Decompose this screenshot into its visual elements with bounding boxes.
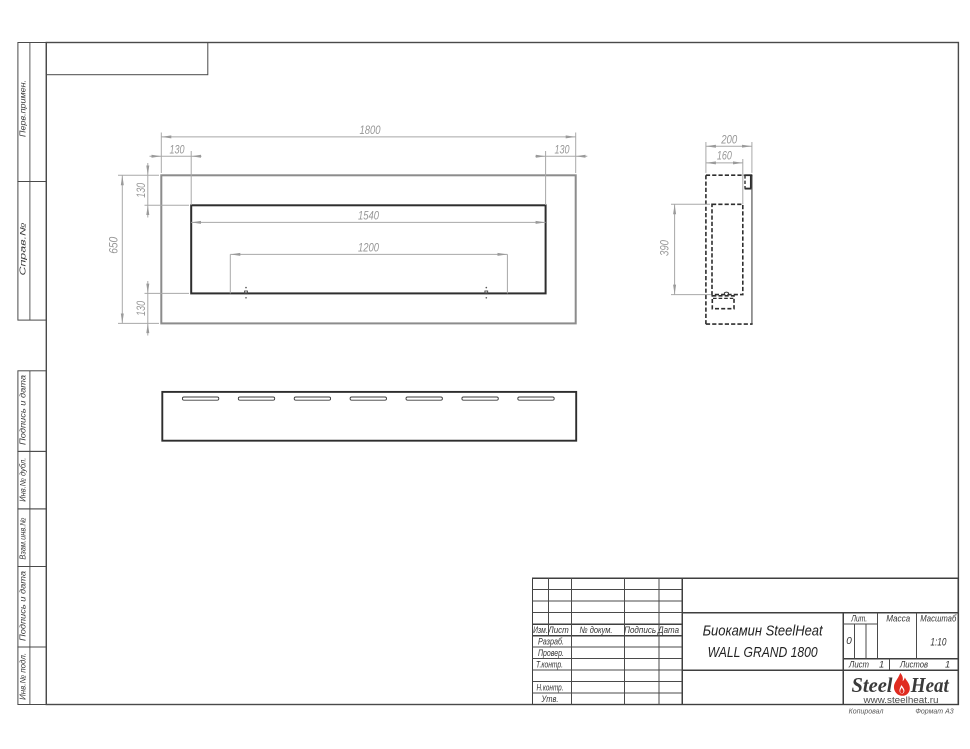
svg-text:Подпись и дата: Подпись и дата xyxy=(19,570,28,641)
svg-text:1: 1 xyxy=(945,660,950,670)
svg-text:Листов: Листов xyxy=(899,660,928,670)
svg-text:Взам.инв.№: Взам.инв.№ xyxy=(19,517,28,559)
svg-text:www.steelheat.ru: www.steelheat.ru xyxy=(862,695,938,705)
svg-text:200: 200 xyxy=(720,132,737,146)
svg-text:Heat: Heat xyxy=(910,673,950,697)
svg-text:Н.контр.: Н.контр. xyxy=(537,682,564,692)
svg-text:Утв.: Утв. xyxy=(541,694,559,704)
svg-text:Подпись и дата: Подпись и дата xyxy=(19,374,28,445)
svg-text:Дата: Дата xyxy=(657,625,679,635)
svg-text:Провер.: Провер. xyxy=(538,648,564,658)
svg-text:130: 130 xyxy=(134,183,148,198)
svg-text:1: 1 xyxy=(879,660,884,670)
svg-text:1540: 1540 xyxy=(358,209,379,223)
svg-text:Биокамин SteelHeat: Биокамин SteelHeat xyxy=(703,623,824,640)
svg-text:Лист: Лист xyxy=(848,660,869,670)
svg-text:1200: 1200 xyxy=(358,241,379,255)
svg-text:130: 130 xyxy=(170,143,185,157)
svg-text:1800: 1800 xyxy=(360,123,381,137)
svg-text:650: 650 xyxy=(107,237,121,254)
svg-text:Т.контр.: Т.контр. xyxy=(536,660,563,670)
svg-text:160: 160 xyxy=(717,149,732,163)
svg-text:Справ.№: Справ.№ xyxy=(19,222,28,276)
svg-text:Инв.№ подл.: Инв.№ подл. xyxy=(19,653,28,700)
svg-text:Разраб.: Разраб. xyxy=(538,637,564,647)
svg-text:Инв.№ дубл.: Инв.№ дубл. xyxy=(19,458,28,502)
svg-text:WALL GRAND 1800: WALL GRAND 1800 xyxy=(708,644,819,661)
svg-text:Изм.: Изм. xyxy=(533,625,548,635)
svg-text:Копировал: Копировал xyxy=(849,709,884,716)
svg-text:0: 0 xyxy=(846,636,852,647)
svg-text:390: 390 xyxy=(657,240,671,256)
svg-text:1:10: 1:10 xyxy=(930,637,947,649)
svg-text:Лит.: Лит. xyxy=(850,614,867,624)
svg-text:Steel: Steel xyxy=(852,673,893,697)
svg-text:Подпись: Подпись xyxy=(624,625,656,635)
svg-text:Лист: Лист xyxy=(547,625,569,635)
svg-text:Перв.примен.: Перв.примен. xyxy=(19,80,28,137)
svg-text:№ докум.: № докум. xyxy=(580,625,613,635)
svg-text:130: 130 xyxy=(555,143,570,157)
svg-text:Масштаб: Масштаб xyxy=(920,614,957,624)
svg-text:Масса: Масса xyxy=(886,614,910,624)
svg-text:130: 130 xyxy=(134,301,148,316)
svg-text:Формат А3: Формат А3 xyxy=(915,709,953,716)
